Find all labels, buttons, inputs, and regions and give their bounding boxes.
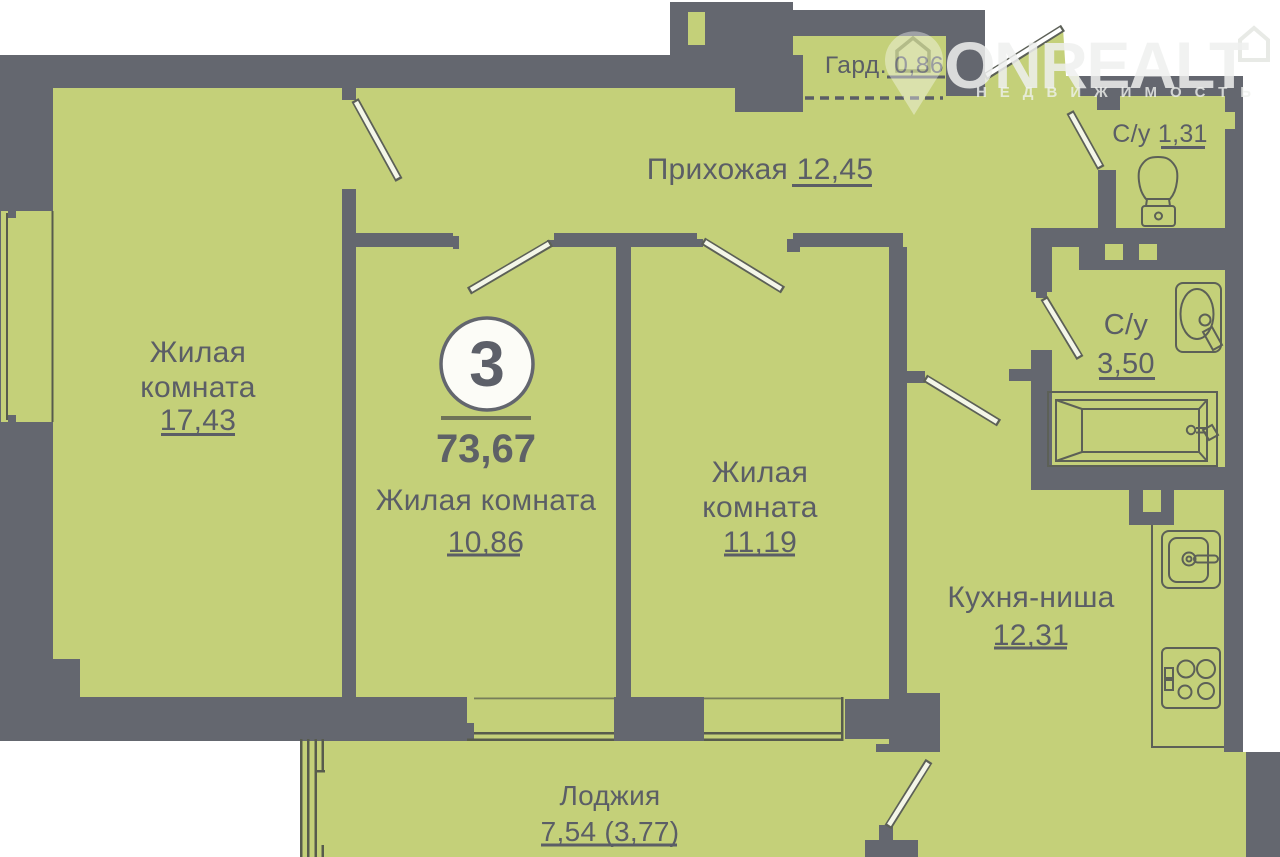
svg-text:Жилая комната: Жилая комната [376, 484, 597, 517]
svg-text:Жилая: Жилая [712, 456, 808, 489]
svg-text:3,50: 3,50 [1097, 348, 1155, 380]
svg-text:7,54 (3,77): 7,54 (3,77) [541, 816, 680, 847]
svg-text:комната: комната [702, 491, 818, 524]
svg-text:Прихожая 12,45: Прихожая 12,45 [647, 153, 874, 186]
svg-text:С/у 1,31: С/у 1,31 [1112, 120, 1208, 148]
svg-text:Кухня-ниша: Кухня-ниша [947, 581, 1114, 614]
svg-text:Лоджия: Лоджия [559, 780, 660, 811]
svg-text:3: 3 [469, 328, 505, 400]
svg-text:комната: комната [140, 371, 256, 404]
svg-text:73,67: 73,67 [436, 427, 536, 471]
svg-text:17,43: 17,43 [160, 404, 237, 437]
svg-text:НЕДВИЖИМОСТЬ: НЕДВИЖИМОСТЬ [976, 84, 1264, 101]
svg-text:Жилая: Жилая [150, 336, 246, 369]
svg-text:С/у: С/у [1104, 309, 1149, 341]
